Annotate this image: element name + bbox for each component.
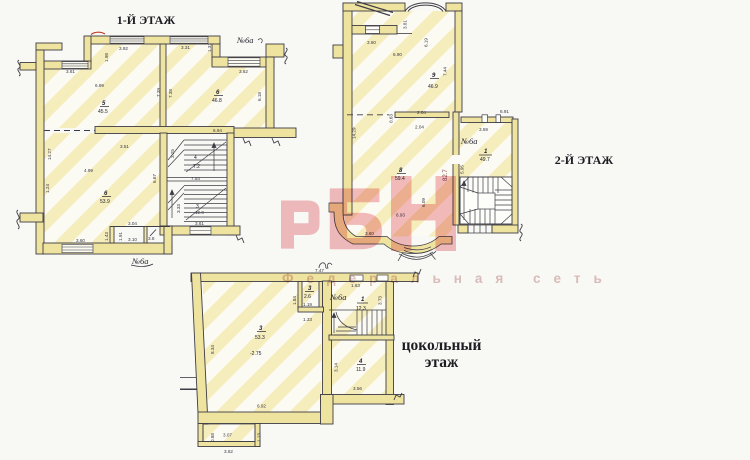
svg-text:7.38: 7.38 bbox=[168, 89, 173, 98]
svg-text:6.91: 6.91 bbox=[500, 109, 509, 114]
svg-text:46.8: 46.8 bbox=[212, 98, 222, 104]
svg-text:14.29: 14.29 bbox=[352, 127, 357, 139]
svg-text:7.54: 7.54 bbox=[191, 176, 200, 181]
svg-text:49.7: 49.7 bbox=[480, 157, 490, 163]
svg-text:5.95: 5.95 bbox=[460, 165, 465, 174]
svg-text:Федеральная сеть: Федеральная сеть bbox=[282, 271, 615, 286]
svg-text:3.07: 3.07 bbox=[223, 433, 232, 438]
svg-text:6.90: 6.90 bbox=[393, 52, 402, 57]
svg-text:3.31: 3.31 bbox=[181, 45, 190, 50]
svg-text:1-Й ЭТАЖ: 1-Й ЭТАЖ bbox=[117, 13, 176, 27]
svg-text:3.33: 3.33 bbox=[176, 204, 181, 213]
svg-text:2.6: 2.6 bbox=[304, 294, 311, 300]
svg-text:45.5: 45.5 bbox=[98, 109, 108, 115]
svg-text:1.98: 1.98 bbox=[104, 53, 109, 62]
svg-text:цокольный: цокольный bbox=[402, 337, 482, 354]
svg-text:12.3: 12.3 bbox=[356, 306, 366, 312]
svg-text:1.13: 1.13 bbox=[257, 433, 262, 442]
svg-text:53.9: 53.9 bbox=[100, 199, 110, 205]
svg-text:№6а: №6а bbox=[460, 136, 478, 146]
svg-text:1.84: 1.84 bbox=[292, 296, 297, 305]
svg-text:3.81: 3.81 bbox=[403, 20, 408, 29]
svg-text:7.44: 7.44 bbox=[443, 67, 448, 76]
svg-text:№6а: №6а bbox=[329, 292, 347, 302]
svg-text:3.8: 3.8 bbox=[148, 236, 155, 241]
svg-text:№6а: №6а bbox=[131, 256, 149, 266]
svg-text:3.60: 3.60 bbox=[367, 40, 376, 45]
svg-text:3.59: 3.59 bbox=[479, 127, 488, 132]
svg-text:3.61: 3.61 bbox=[66, 69, 75, 74]
svg-text:3.51: 3.51 bbox=[120, 144, 129, 149]
svg-text:6.92: 6.92 bbox=[257, 404, 266, 409]
svg-text:4: 4 bbox=[194, 155, 197, 161]
svg-text:1.33: 1.33 bbox=[303, 317, 312, 322]
svg-text:2.04: 2.04 bbox=[417, 110, 426, 115]
svg-text:1.31: 1.31 bbox=[207, 43, 212, 52]
svg-text:3.60: 3.60 bbox=[76, 238, 85, 243]
svg-text:№6а: №6а bbox=[236, 35, 254, 45]
svg-text:2.04: 2.04 bbox=[415, 125, 424, 130]
svg-text:4: 4 bbox=[358, 359, 363, 365]
svg-text:7.39: 7.39 bbox=[156, 88, 161, 97]
svg-text:1.19: 1.19 bbox=[303, 302, 312, 307]
svg-text:0.88: 0.88 bbox=[210, 433, 215, 442]
svg-text:3.62: 3.62 bbox=[224, 449, 233, 454]
svg-text:46.9: 46.9 bbox=[428, 84, 438, 90]
svg-text:6.94: 6.94 bbox=[213, 128, 222, 133]
svg-text:3.92: 3.92 bbox=[119, 46, 128, 51]
svg-text:1.91: 1.91 bbox=[118, 232, 123, 241]
svg-text:53.3: 53.3 bbox=[255, 335, 265, 341]
svg-text:1.24: 1.24 bbox=[45, 184, 50, 193]
svg-text:11.9: 11.9 bbox=[356, 367, 366, 373]
svg-text:3.04: 3.04 bbox=[128, 221, 137, 226]
svg-text:этаж: этаж bbox=[425, 354, 459, 371]
svg-text:3.25: 3.25 bbox=[170, 149, 175, 158]
svg-text:2-Й ЭТАЖ: 2-Й ЭТАЖ bbox=[555, 153, 614, 167]
svg-text:1.43: 1.43 bbox=[104, 232, 109, 241]
svg-text:7.2: 7.2 bbox=[193, 164, 200, 170]
svg-text:3.56: 3.56 bbox=[353, 386, 362, 391]
svg-text:6.99: 6.99 bbox=[95, 83, 104, 88]
svg-text:6.18: 6.18 bbox=[257, 92, 262, 101]
svg-text:3.14: 3.14 bbox=[334, 363, 339, 372]
svg-text:3.73: 3.73 bbox=[378, 296, 383, 305]
svg-text:-2.75: -2.75 bbox=[250, 351, 262, 357]
svg-text:6.67: 6.67 bbox=[152, 174, 157, 183]
svg-text:8.34: 8.34 bbox=[210, 345, 215, 354]
svg-text:3.10: 3.10 bbox=[128, 237, 137, 242]
svg-text:12.0: 12.0 bbox=[195, 210, 204, 215]
svg-text:3.62: 3.62 bbox=[239, 69, 248, 74]
svg-text:4.99: 4.99 bbox=[84, 168, 93, 173]
svg-text:6.19: 6.19 bbox=[424, 38, 429, 47]
svg-text:3.61: 3.61 bbox=[195, 221, 204, 226]
svg-text:0.63: 0.63 bbox=[389, 114, 394, 123]
svg-text:14.27: 14.27 bbox=[47, 148, 52, 160]
